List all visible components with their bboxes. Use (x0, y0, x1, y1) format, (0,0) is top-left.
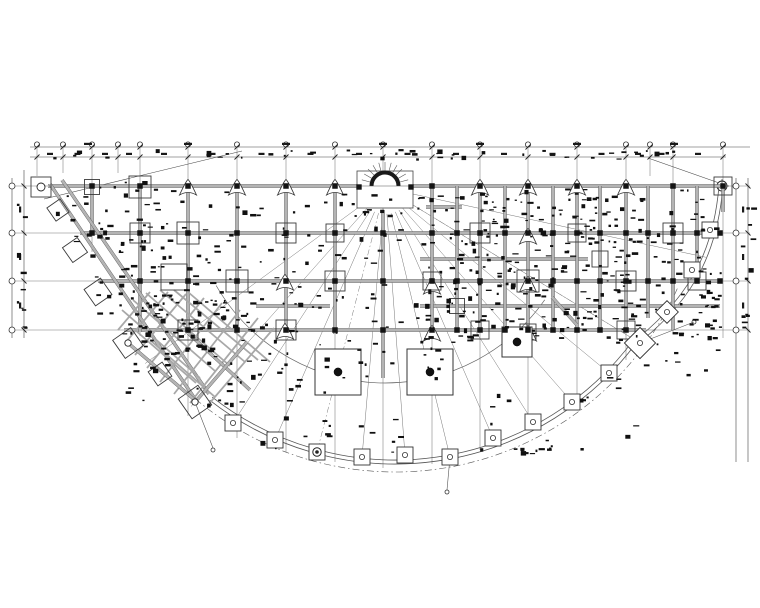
stair-fan-feature (356, 162, 413, 208)
structural-floor-plan (0, 0, 760, 608)
cad-drawing-page (0, 0, 760, 608)
